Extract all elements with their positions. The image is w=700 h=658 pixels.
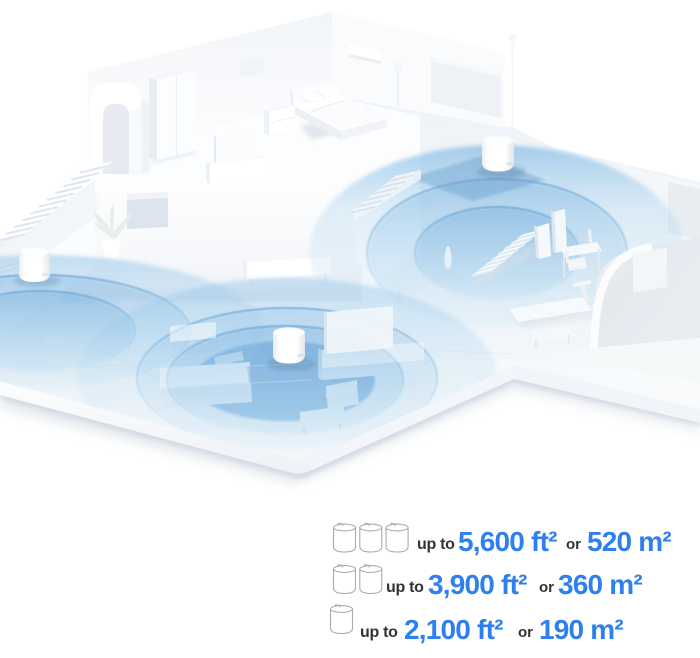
svg-text:2,100 ft²: 2,100 ft² bbox=[404, 614, 503, 645]
svg-text:up to: up to bbox=[417, 536, 455, 553]
svg-text:5,600 ft²: 5,600 ft² bbox=[458, 526, 557, 557]
svg-text:or: or bbox=[518, 624, 533, 641]
svg-text:up to: up to bbox=[360, 624, 398, 641]
svg-text:3,900 ft²: 3,900 ft² bbox=[428, 569, 527, 600]
svg-text:or: or bbox=[566, 536, 581, 553]
svg-text:190 m²: 190 m² bbox=[539, 614, 623, 645]
svg-text:or: or bbox=[539, 579, 554, 596]
svg-text:520 m²: 520 m² bbox=[587, 526, 671, 557]
svg-text:360 m²: 360 m² bbox=[558, 569, 642, 600]
svg-text:up to: up to bbox=[386, 579, 424, 596]
